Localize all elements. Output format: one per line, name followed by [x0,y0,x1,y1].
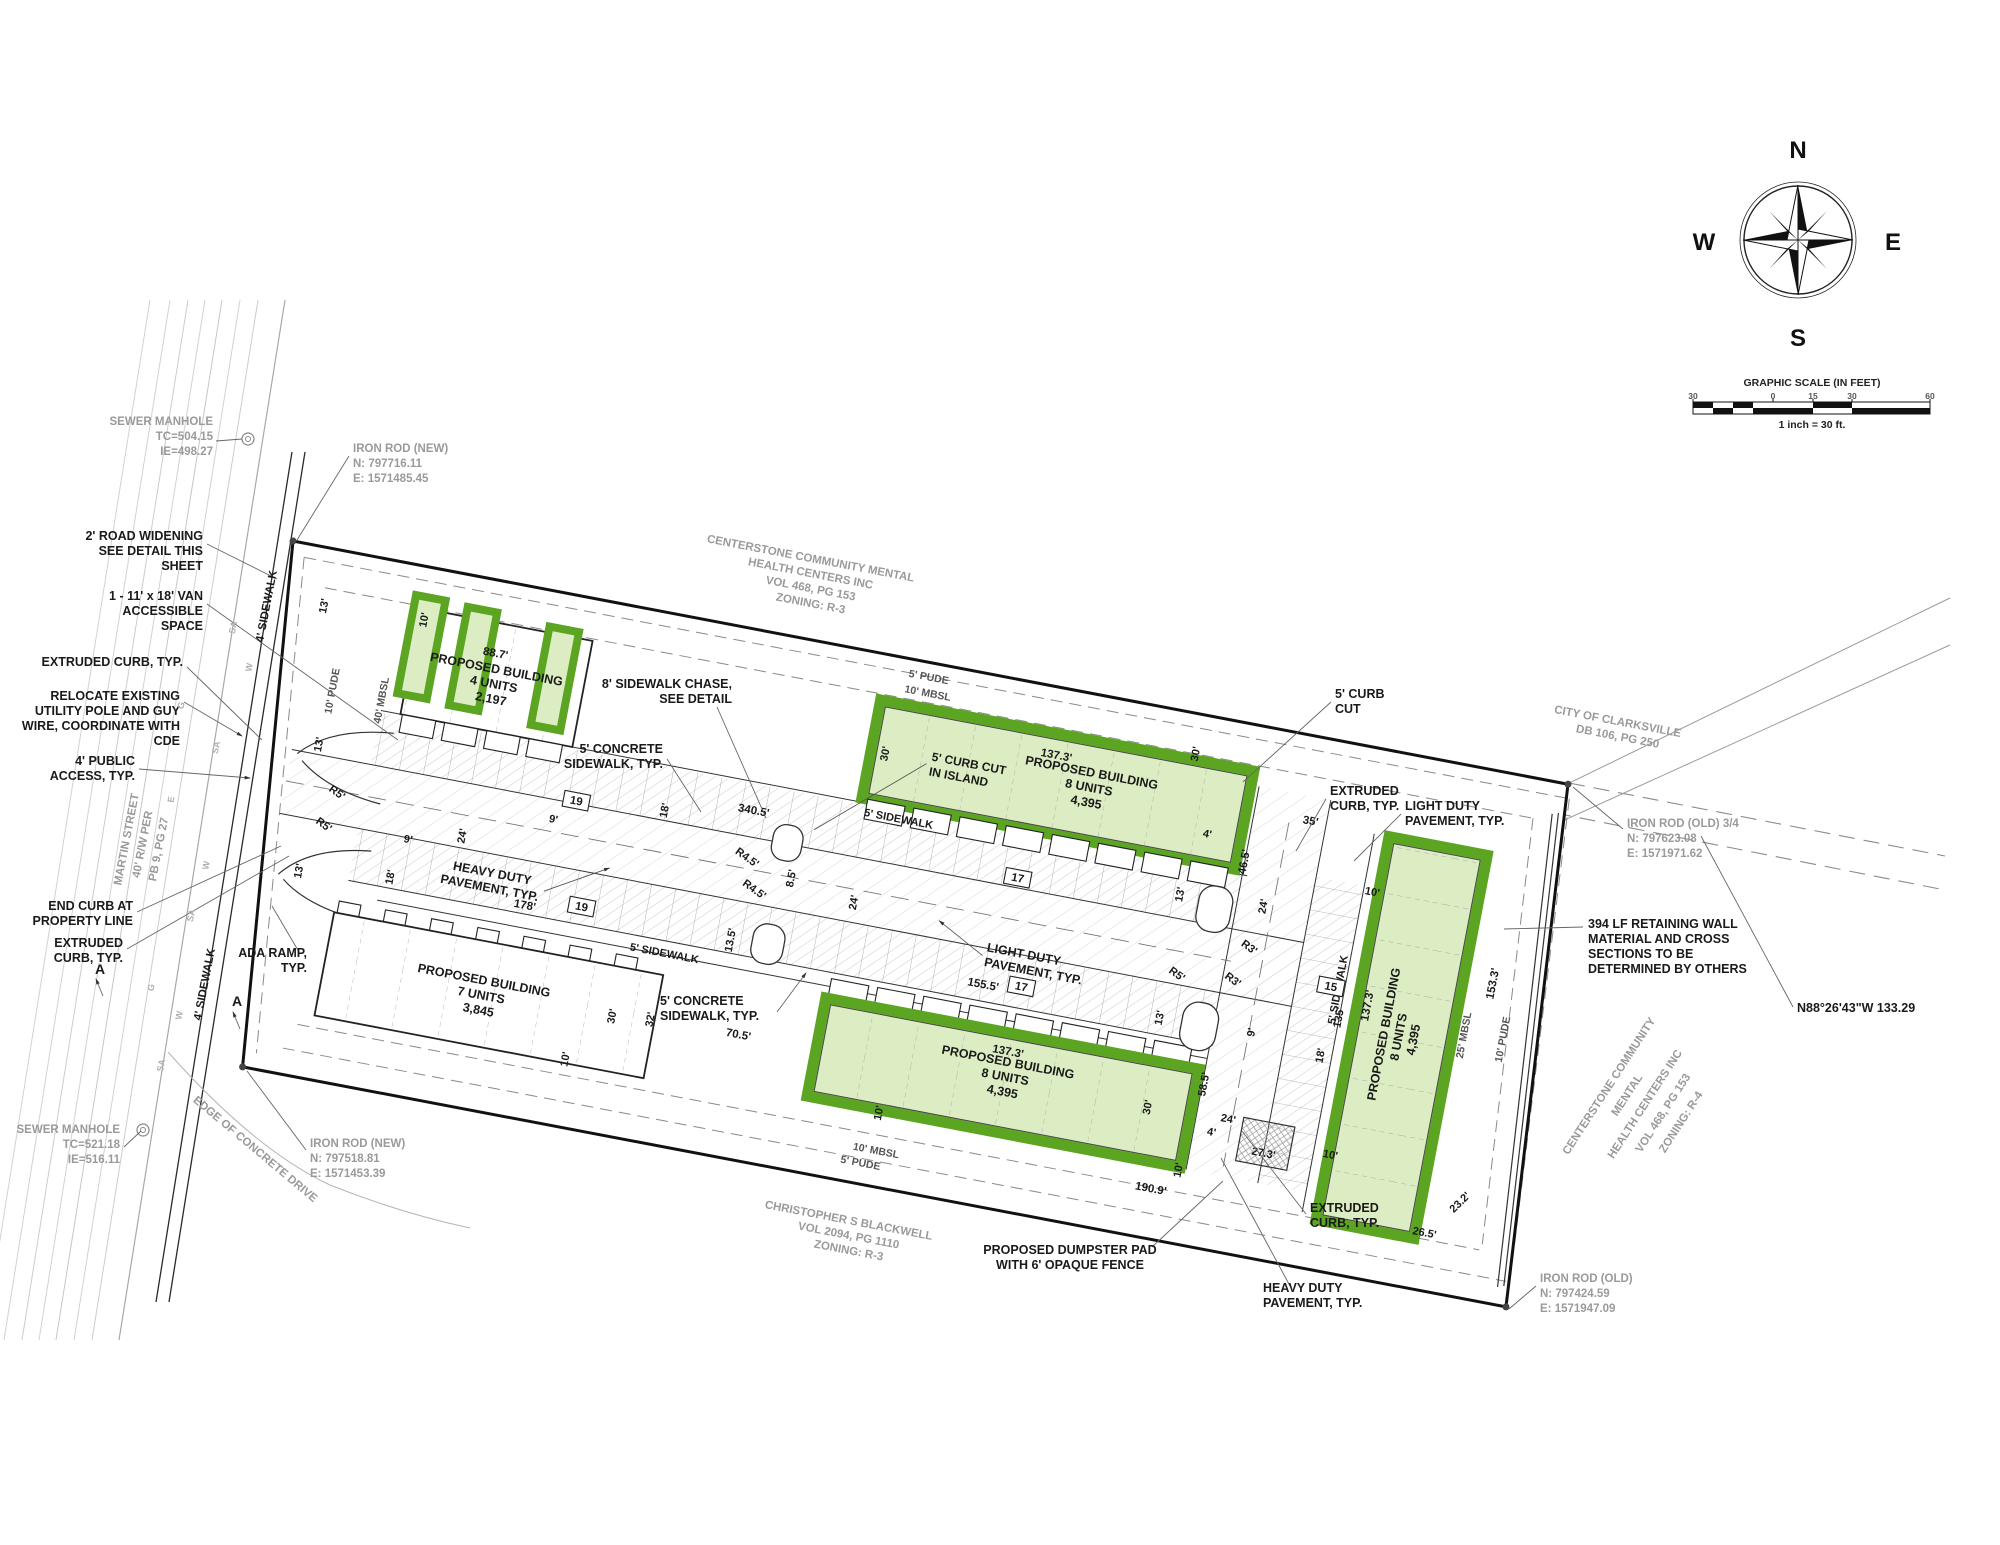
dimension-label: N: 797518.81 [310,1153,380,1165]
dimension-label: DETERMINED BY OTHERS [1588,962,1747,976]
dimension-label: E [166,796,177,804]
parking-count-value: 17 [1010,872,1025,886]
dimension-label: PROPERTY LINE [33,914,133,928]
concrete-sidewalk-callout-2: 5' CONCRETE [660,994,744,1008]
compass-east: E [1885,229,1901,256]
dimension-label: SPACE [161,619,203,633]
dimension-label: SA [227,620,239,635]
dimension-label: G [145,983,156,992]
bearing-label: N88°26'43"W 133.29 [1797,1001,1915,1015]
dimension-label: CDE [154,734,180,748]
extruded-curb-callout-southeast: EXTRUDED [1310,1201,1379,1215]
curb-cut-east-callout: 5' CURB [1335,687,1385,701]
dimension-label: CUT [1335,702,1361,716]
site-area: PROPOSED BUILDING4 UNITS2,19788.7'10'13'… [190,537,1608,1312]
dimension-label: IE=516.11 [68,1154,121,1166]
dimension-label: 60 [1925,391,1935,401]
dimension-label: W [173,1010,185,1021]
dimension-label: SEE DETAIL THIS [99,544,203,558]
dimension-label: E: 1571971.62 [1627,848,1702,860]
section-arrow-a2 [233,1012,240,1029]
dimension-label: CURB, TYP. [1330,799,1399,813]
compass-west: W [1693,229,1716,256]
dimension-label: N: 797424.59 [1540,1288,1610,1300]
section-marker-a2: A [232,993,242,1009]
public-access-callout: 4' PUBLIC [75,754,135,768]
dimension-label: SHEET [161,559,203,573]
dimension-label: UTILITY POLE AND GUY [35,704,181,718]
dimension-label: 30 [1688,391,1698,401]
dimension-label: TC=504.15 [156,431,214,443]
dimension-label: SIDEWALK, TYP. [660,1009,759,1023]
dimension-label: 30 [1847,391,1857,401]
dimension-label: W [200,860,212,871]
extruded-curb-callout-1: EXTRUDED CURB, TYP. [42,655,183,669]
sewer-manhole-north-symbol [242,433,254,445]
dimension-label: 0 [1771,391,1776,401]
street-sidewalk-label-lower: 4' SIDEWALK [192,947,218,1022]
iron-rod-new-south-label: IRON ROD (NEW) [310,1138,405,1150]
iron-rod-new-north-label: IRON ROD (NEW) [353,443,448,455]
scale-bar-title: GRAPHIC SCALE (IN FEET) [1743,377,1880,389]
parking-count-value: 19 [569,795,584,809]
van-space-callout: 1 - 11' x 18' VAN [109,589,203,603]
section-marker-a1: A [95,961,105,977]
dumpster-pad-callout: PROPOSED DUMPSTER PAD [983,1243,1156,1257]
dimension-label: PAVEMENT, TYP. [1263,1296,1362,1310]
extruded-curb-callout-2: EXTRUDED [54,936,123,950]
iron-rod-old-34-label: IRON ROD (OLD) 3/4 [1627,818,1739,830]
sidewalk-chase-callout: 8' SIDEWALK CHASE, [602,677,732,691]
dimension-label: SA [185,908,197,923]
site-plan-sheet: { "colors":{"green_border":"#5ca522","gr… [0,0,2000,1545]
retaining-wall-callout: 394 LF RETAINING WALL [1588,917,1738,931]
dimension-label: SIDEWALK, TYP. [564,757,663,771]
dimension-label: SEE DETAIL [659,692,732,706]
dimension-label: IE=498.27 [160,446,213,458]
end-curb-callout: END CURB AT [48,899,133,913]
iron-rod-old-south-label: IRON ROD (OLD) [1540,1273,1633,1285]
concrete-sidewalk-callout-1: 5' CONCRETE [579,742,663,756]
dimension-label: ACCESS, TYP. [50,769,135,783]
dumpster-pad [1236,1117,1295,1170]
heavy-duty-callout-south: HEAVY DUTY [1263,1281,1343,1295]
light-duty-callout-east: LIGHT DUTY [1405,799,1481,813]
dimension-label: E: 1571947.09 [1540,1303,1615,1315]
sewer-manhole-north-label: SEWER MANHOLE [110,416,214,428]
parking-count-value: 17 [1014,980,1029,994]
road-widening-callout: 2' ROAD WIDENING [85,529,203,543]
parking-count-value: 19 [574,900,589,914]
compass-south: S [1790,325,1806,352]
compass-rose [1740,182,1856,298]
dimension-label: SECTIONS TO BE [1588,947,1693,961]
dimension-label: SA [210,740,222,755]
dimension-label: ACCESSIBLE [122,604,203,618]
dimension-label: CURB, TYP. [54,951,123,965]
sewer-manhole-south-symbol [137,1124,149,1136]
dimension-label: MATERIAL AND CROSS [1588,932,1729,946]
dimension-label: CURB, TYP. [1310,1216,1379,1230]
scale-bar-note: 1 inch = 30 ft. [1779,419,1846,431]
ada-ramp-callout: ADA RAMP, [238,946,307,960]
site-plan-drawing: PROPOSED BUILDING4 UNITS2,19788.7'10'13'… [0,0,2000,1545]
dimension-label: E: 1571453.39 [310,1168,385,1180]
dimension-label: E: 1571485.45 [353,473,429,485]
dimension-label: SA [155,1058,167,1073]
dimension-label: W [243,662,255,673]
edge-of-concrete-label: EDGE OF CONCRETE DRIVE [191,1094,320,1205]
dimension-label: TC=521.18 [63,1139,121,1151]
relocate-pole-callout: RELOCATE EXISTING [50,689,180,703]
section-arrow-a1 [96,979,103,996]
dimension-label: WIRE, COORDINATE WITH [22,719,180,733]
dimension-label: TYP. [281,961,307,975]
dimension-label: WITH 6' OPAQUE FENCE [996,1258,1144,1272]
dimension-label: 15 [1808,391,1818,401]
dimension-label: PAVEMENT, TYP. [1405,814,1504,828]
extruded-curb-callout-east: EXTRUDED [1330,784,1399,798]
graphic-scale-bar [1693,399,1930,414]
compass-north: N [1789,137,1806,164]
dimension-label: N: 797716.11 [353,458,423,470]
dimension-label: N: 797623.08 [1627,833,1697,845]
sewer-manhole-south-label: SEWER MANHOLE [17,1124,121,1136]
